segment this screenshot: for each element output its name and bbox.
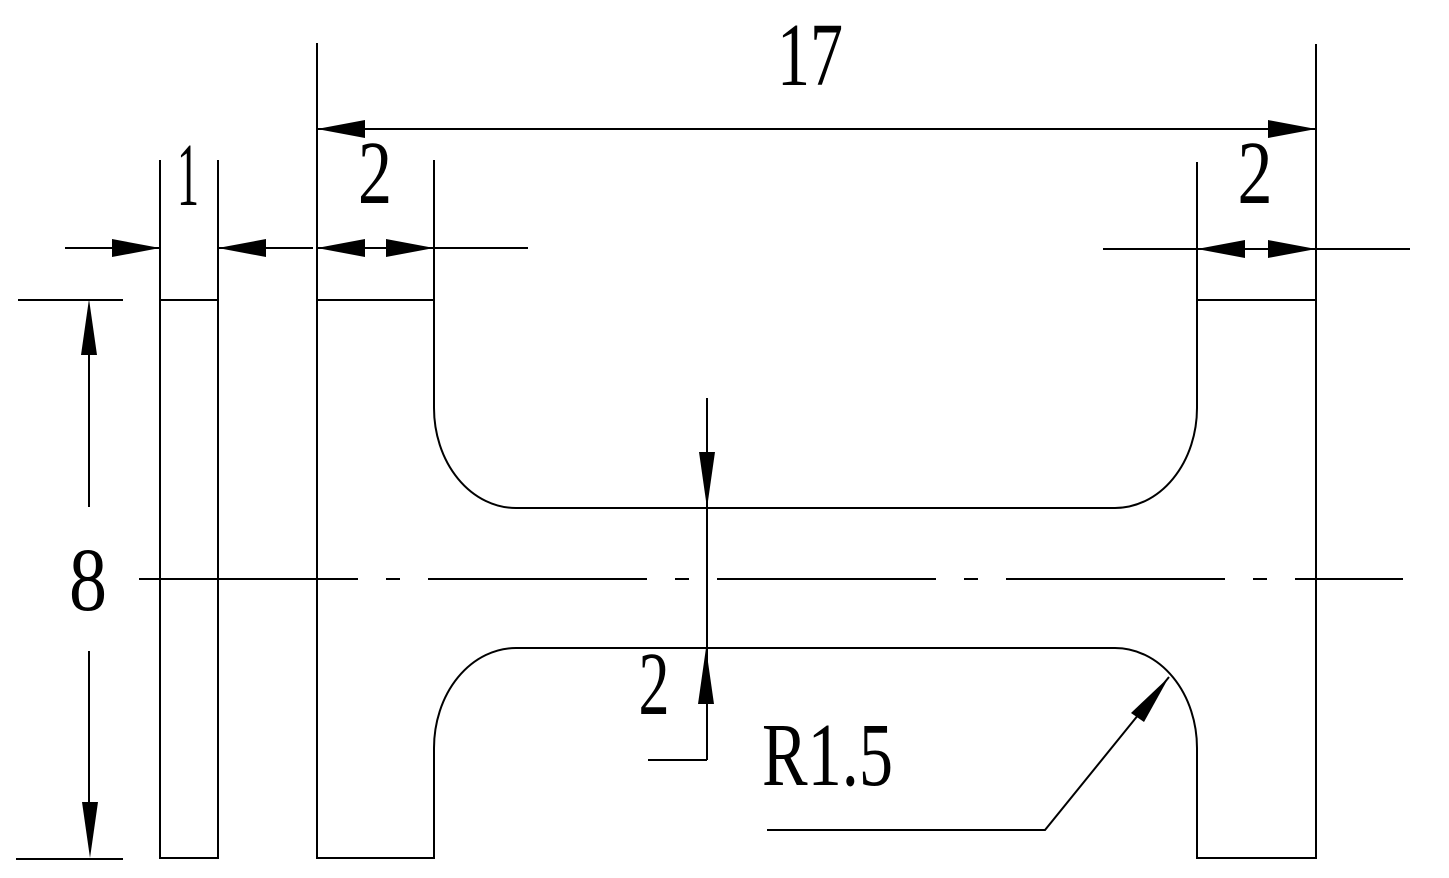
- dimension-label-17: 17: [777, 6, 843, 105]
- arrow-left-icon: [317, 239, 365, 257]
- arrow-leader-icon: [1131, 677, 1169, 722]
- dimension-label-1: 1: [177, 126, 199, 225]
- dimension-slice-thickness: 1: [65, 126, 313, 257]
- dimension-overall-width: 17: [317, 6, 1316, 138]
- arrow-left-icon: [218, 239, 266, 257]
- dimension-right-flange: 2: [1103, 124, 1410, 258]
- dimension-drawing: 17 1 2 2 8: [0, 0, 1449, 878]
- engineering-drawing-canvas: 17 1 2 2 8: [0, 0, 1449, 878]
- dimension-label-2-right: 2: [1238, 124, 1273, 223]
- dimension-overall-height: 8: [69, 299, 107, 858]
- arrow-right-icon: [1268, 120, 1316, 138]
- dimension-label-8: 8: [69, 531, 107, 630]
- arrow-down-icon: [699, 452, 715, 508]
- arrow-right-icon: [112, 239, 160, 257]
- arrow-right-icon: [386, 239, 434, 257]
- dimension-left-flange: 2: [317, 124, 528, 257]
- dimension-label-r1-5: R1.5: [762, 706, 893, 805]
- arrow-up-icon: [698, 648, 714, 704]
- dimension-label-2-web: 2: [639, 635, 670, 734]
- arrow-left-icon: [1197, 240, 1245, 258]
- dimension-label-2-left: 2: [358, 124, 392, 223]
- dimension-fillet-radius: R1.5: [762, 677, 1169, 830]
- arrow-right-icon: [1268, 240, 1316, 258]
- arrow-down-icon: [82, 802, 98, 858]
- arrow-up-icon: [81, 299, 97, 355]
